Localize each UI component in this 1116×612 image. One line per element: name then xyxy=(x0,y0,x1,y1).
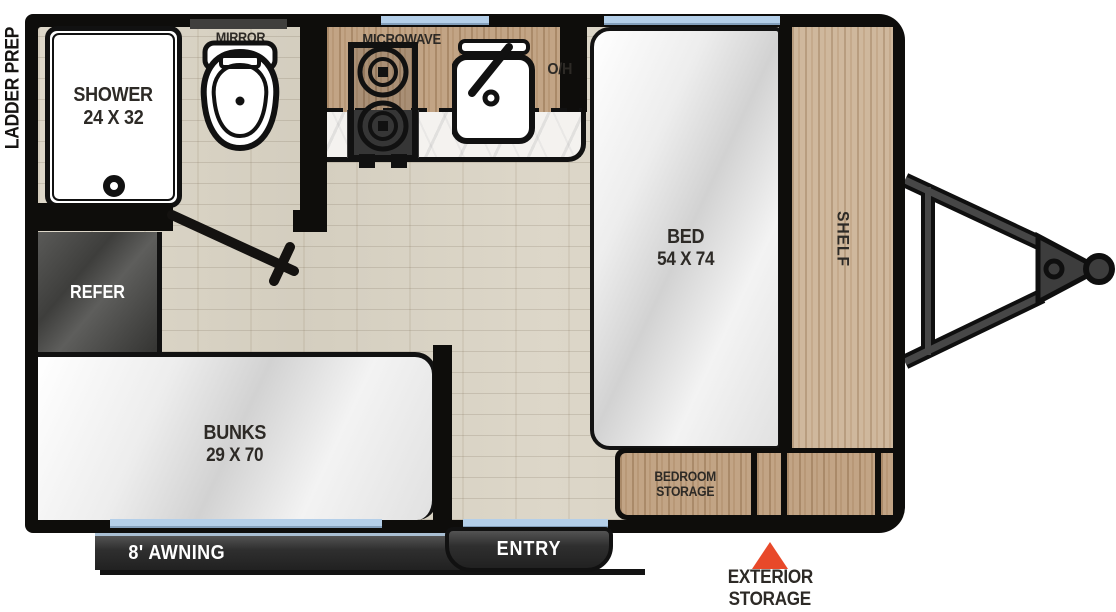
bunks-label: BUNKS 29 X 70 xyxy=(200,422,270,467)
storage-divider-panel xyxy=(757,453,781,515)
hitch-icon xyxy=(895,165,1116,380)
storage-panel xyxy=(787,453,875,515)
shower: SHOWER 24 X 32 xyxy=(45,26,182,208)
bathroom-door-icon xyxy=(165,206,335,301)
bed: BED 54 X 74 xyxy=(590,27,782,450)
toilet-icon xyxy=(197,40,283,162)
kitchen-window xyxy=(381,16,489,25)
refer-box: REFER xyxy=(38,232,162,352)
shelf: SHELF xyxy=(792,27,893,450)
exterior-storage-marker-icon xyxy=(752,542,788,569)
shelf-label: SHELF xyxy=(832,211,852,267)
sink-icon xyxy=(452,38,564,162)
floorplan-canvas: LADDER PREP SHOWER 24 X 32 MIR xyxy=(0,0,1116,612)
mirror-bar-icon xyxy=(190,19,287,29)
bunks-side-wall xyxy=(433,345,452,520)
awning-bar: 8' AWNING xyxy=(95,533,460,570)
entry-step: ENTRY xyxy=(445,527,613,572)
exterior-storage-label: EXTERIOR STORAGE xyxy=(695,567,845,611)
shower-label: SHOWER 24 X 32 xyxy=(50,21,177,193)
bunks-window xyxy=(110,519,382,528)
overhead-cabinet-label: O/H xyxy=(528,61,592,79)
cooktop-icon xyxy=(347,42,419,172)
bedroom-storage-cabinet: BEDROOM STORAGE xyxy=(615,448,893,520)
bed-label: BED 54 X 74 xyxy=(654,226,717,271)
trailer-body: SHOWER 24 X 32 MIRROR xyxy=(25,14,905,533)
bedroom-storage-panel: BEDROOM STORAGE xyxy=(620,453,751,515)
refer-label: REFER xyxy=(70,282,125,303)
shower-drain-icon xyxy=(103,175,125,197)
bed-window xyxy=(604,16,780,25)
bathroom-wall xyxy=(300,25,327,232)
bed-shelf-divider xyxy=(779,25,792,452)
bathroom-lower-wall xyxy=(38,203,173,231)
entry-label: ENTRY xyxy=(497,538,562,561)
storage-end-panel xyxy=(881,453,893,515)
ladder-prep-label: LADDER PREP xyxy=(0,22,26,154)
awning-label: 8' AWNING xyxy=(128,542,225,565)
bunks: BUNKS 29 X 70 xyxy=(38,352,437,520)
